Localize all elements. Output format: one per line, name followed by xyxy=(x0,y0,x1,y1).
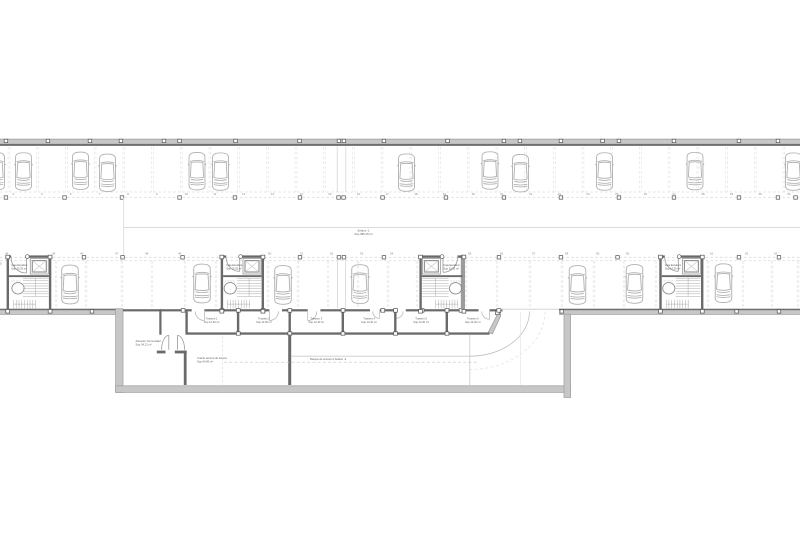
svg-text:Sup 64.80 m²: Sup 64.80 m² xyxy=(197,360,213,364)
svg-text:61: 61 xyxy=(710,252,714,256)
svg-text:45: 45 xyxy=(52,252,56,256)
svg-text:Trastero 2: Trastero 2 xyxy=(258,317,270,321)
svg-text:49: 49 xyxy=(178,252,182,256)
svg-text:28: 28 xyxy=(701,192,705,196)
svg-text:Rampa de acceso a Sótano -2: Rampa de acceso a Sótano -2 xyxy=(310,357,347,361)
svg-text:Trastero 4: Trastero 4 xyxy=(363,317,375,321)
svg-text:Sup 34.21 m²: Sup 34.21 m² xyxy=(136,343,152,347)
svg-text:12: 12 xyxy=(242,192,246,196)
svg-text:Sup 12.30 m²: Sup 12.30 m² xyxy=(361,320,377,324)
svg-text:58: 58 xyxy=(565,252,569,256)
svg-text:46: 46 xyxy=(80,252,84,256)
svg-text:Almacén Comunidad: Almacén Comunidad xyxy=(136,339,161,343)
svg-text:Trastero 5: Trastero 5 xyxy=(415,317,427,321)
svg-text:31: 31 xyxy=(787,192,791,196)
svg-text:Sup 12.30 m²: Sup 12.30 m² xyxy=(309,320,325,324)
svg-text:47: 47 xyxy=(115,252,119,256)
svg-text:26: 26 xyxy=(644,192,648,196)
svg-text:Sup 10.35 m²: Sup 10.35 m² xyxy=(443,266,459,270)
svg-text:Sup 10.35 m²: Sup 10.35 m² xyxy=(665,266,681,270)
svg-text:53: 53 xyxy=(360,252,364,256)
svg-text:52: 52 xyxy=(330,252,334,256)
svg-text:63: 63 xyxy=(774,252,778,256)
svg-text:60: 60 xyxy=(626,252,630,256)
svg-text:62: 62 xyxy=(745,252,749,256)
svg-text:11: 11 xyxy=(213,192,216,196)
svg-text:Sup 10.35 m²: Sup 10.35 m² xyxy=(11,266,27,270)
svg-text:51: 51 xyxy=(300,252,304,256)
svg-text:Sup 12.30 m²: Sup 12.30 m² xyxy=(256,320,272,324)
svg-text:Trastero 1: Trastero 1 xyxy=(206,317,218,321)
svg-text:56: 56 xyxy=(500,252,504,256)
svg-text:Sup 12.30 m²: Sup 12.30 m² xyxy=(204,320,220,324)
svg-text:30: 30 xyxy=(759,192,763,196)
svg-text:17: 17 xyxy=(386,192,390,196)
svg-text:Sup 12.30 m²: Sup 12.30 m² xyxy=(465,320,481,324)
svg-text:Sup 995.45 m²: Sup 995.45 m² xyxy=(354,232,372,236)
svg-text:Sup 10.35 m²: Sup 10.35 m² xyxy=(226,266,242,270)
svg-text:48: 48 xyxy=(145,252,149,256)
svg-text:50: 50 xyxy=(268,252,272,256)
svg-text:57: 57 xyxy=(532,252,536,256)
svg-text:16: 16 xyxy=(357,192,361,196)
svg-text:13: 13 xyxy=(271,192,275,196)
svg-text:Sup 12.30 m²: Sup 12.30 m² xyxy=(413,320,429,324)
svg-text:22: 22 xyxy=(529,192,533,196)
svg-text:Trastero 6: Trastero 6 xyxy=(467,317,479,321)
svg-text:Trastero 3: Trastero 3 xyxy=(310,317,322,321)
svg-text:29: 29 xyxy=(730,192,734,196)
svg-text:20: 20 xyxy=(472,192,476,196)
svg-text:55: 55 xyxy=(468,252,472,256)
svg-text:24: 24 xyxy=(586,192,590,196)
svg-text:54: 54 xyxy=(390,252,394,256)
svg-text:59: 59 xyxy=(596,252,600,256)
svg-text:10: 10 xyxy=(185,192,189,196)
svg-text:18: 18 xyxy=(414,192,418,196)
svg-text:15: 15 xyxy=(328,192,332,196)
